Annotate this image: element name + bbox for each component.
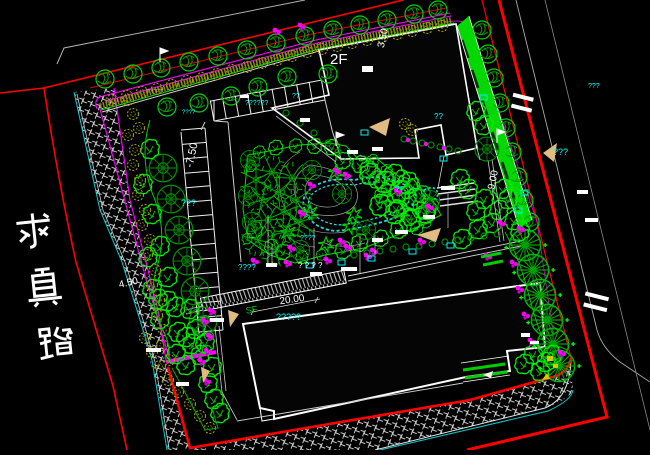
svg-text:????: ????	[238, 263, 256, 272]
svg-text:???: ???	[588, 83, 600, 90]
svg-text:??: ??	[292, 93, 300, 100]
svg-text:??????: ??????	[245, 100, 268, 107]
svg-text:????: ????	[182, 110, 196, 116]
svg-text:2F: 2F	[330, 51, 348, 68]
svg-text:┬┬┬┬: ┬┬┬┬	[145, 87, 164, 93]
svg-text:????: ????	[300, 235, 316, 242]
svg-text:???: ???	[553, 147, 568, 157]
svg-text:??: ??	[434, 112, 443, 121]
svg-text:???: ???	[181, 198, 196, 208]
svg-text:?????: ?????	[276, 312, 301, 322]
svg-text:??: ??	[395, 185, 404, 194]
svg-text:SF: SF	[245, 304, 258, 316]
svg-text:? ? ? ?: ? ? ? ?	[298, 261, 323, 270]
